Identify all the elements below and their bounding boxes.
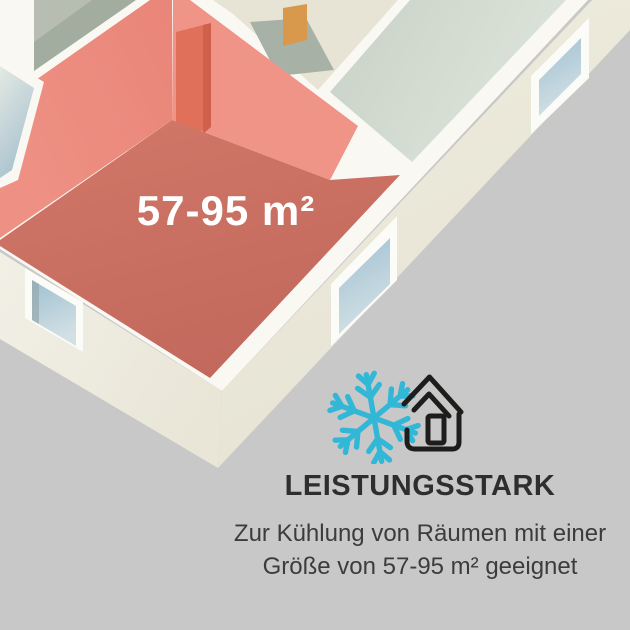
product-feature-image: 57-95 m² bbox=[0, 0, 630, 630]
feature-heading: LEISTUNGSSTARK bbox=[234, 470, 606, 503]
room-area-label: 57-95 m² bbox=[137, 187, 315, 235]
back-room-furniture bbox=[283, 4, 307, 46]
feature-description-line2: Größe von 57-95 m² geeignet bbox=[234, 550, 606, 583]
feature-text-block: LEISTUNGSSTARK Zur Kühlung von Räumen mi… bbox=[234, 470, 606, 583]
feature-icons bbox=[320, 364, 480, 464]
door-opening-shade bbox=[203, 23, 211, 134]
feature-description-line1: Zur Kühlung von Räumen mit einer bbox=[234, 517, 606, 550]
